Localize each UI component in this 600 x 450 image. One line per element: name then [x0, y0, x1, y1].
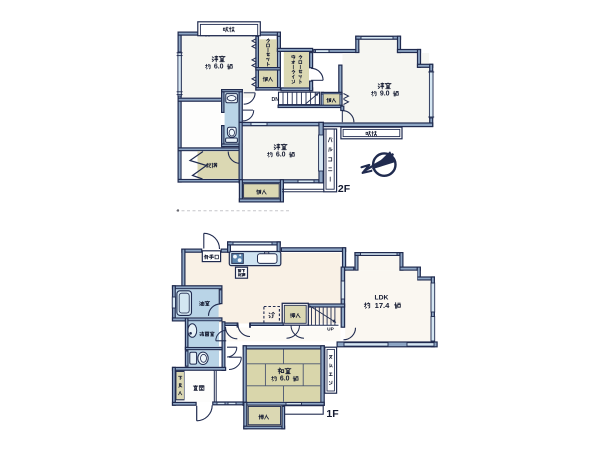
- svg-text:9.0: 9.0: [380, 91, 390, 98]
- svg-text:6.0: 6.0: [214, 64, 224, 71]
- svg-text:DN: DN: [272, 97, 280, 103]
- svg-text:1F: 1F: [326, 408, 339, 420]
- svg-text:2F: 2F: [338, 183, 351, 195]
- svg-text:17.4: 17.4: [375, 301, 391, 310]
- svg-text:6.0: 6.0: [280, 376, 290, 383]
- svg-text:UP: UP: [327, 327, 334, 333]
- svg-text:6.0: 6.0: [276, 152, 286, 159]
